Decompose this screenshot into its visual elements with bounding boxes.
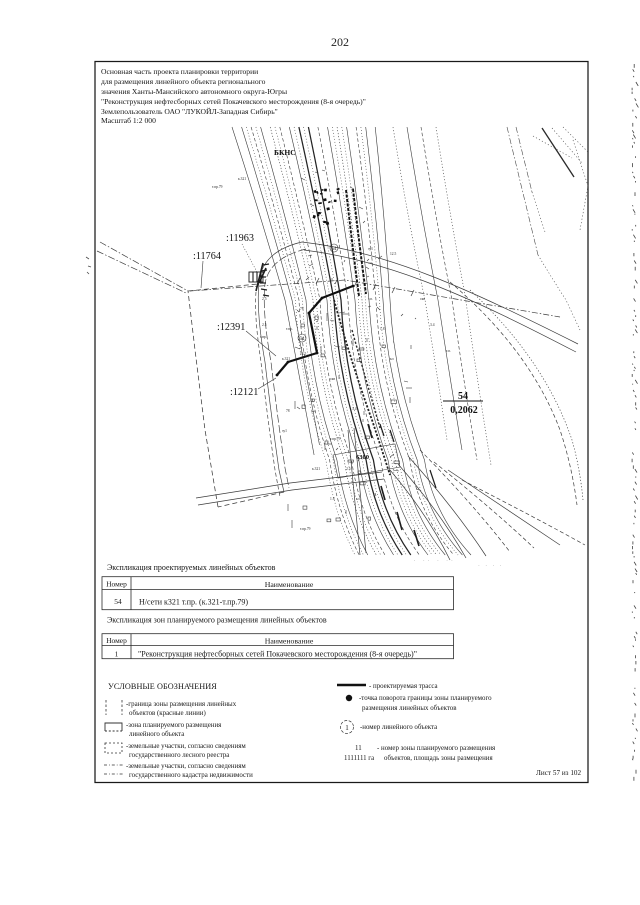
svg-text::12391: :12391	[217, 322, 245, 333]
svg-text:объектов (красные линии): объектов (красные линии)	[129, 710, 206, 717]
svg-text:т.пр.79: т.пр.79	[212, 185, 223, 189]
svg-text:государственного лесного реест: государственного лесного реестра	[129, 752, 229, 759]
svg-text:54: 54	[300, 337, 306, 342]
svg-text:-граница зоны размещения линей: -граница зоны размещения линейных	[126, 701, 237, 708]
svg-text:Лист 57 из 102: Лист 57 из 102	[536, 769, 582, 777]
svg-text:54: 54	[114, 597, 122, 606]
svg-text:т.пр.79: т.пр.79	[330, 437, 341, 441]
svg-text:Экспликация зон планируемого р: Экспликация зон планируемого размещения …	[107, 616, 327, 625]
svg-text:к.321: к.321	[312, 467, 320, 471]
svg-text:"Реконструкция нефтесборных се: "Реконструкция нефтесборных сетей Покаче…	[101, 97, 366, 106]
svg-text:скв: скв	[330, 377, 335, 381]
svg-text:Основная часть проекта планиро: Основная часть проекта планировки террит…	[101, 67, 258, 76]
svg-text:54: 54	[458, 391, 468, 402]
svg-text:2.5: 2.5	[262, 323, 267, 327]
svg-text:Экспликация проектируемых лине: Экспликация проектируемых линейных объек…	[107, 563, 276, 572]
svg-text:Наименование: Наименование	[265, 637, 314, 646]
svg-text:-земельные участки, согласно с: -земельные участки, согласно сведениям	[126, 743, 246, 750]
svg-text:значения Ханты-Мансийского авт: значения Ханты-Мансийского автономного о…	[101, 87, 287, 96]
svg-text:-земельные участки, согласно с: -земельные участки, согласно сведениям	[126, 763, 246, 770]
svg-text:УСЛОВНЫЕ ОБОЗНАЧЕНИЯ: УСЛОВНЫЕ ОБОЗНАЧЕНИЯ	[108, 682, 217, 691]
svg-text:т.вр.: т.вр.	[260, 335, 267, 339]
svg-text:3.4: 3.4	[430, 323, 435, 327]
svg-text:скв: скв	[420, 297, 425, 301]
svg-text:1.8: 1.8	[380, 327, 385, 331]
svg-text:Наименование: Наименование	[265, 580, 314, 589]
svg-text:6300: 6300	[356, 454, 369, 461]
svg-text::11963: :11963	[226, 233, 254, 244]
svg-text::11764: :11764	[193, 251, 221, 262]
svg-text:202: 202	[331, 35, 349, 49]
svg-text:1: 1	[345, 724, 349, 732]
svg-text:т.п.: т.п.	[368, 297, 373, 301]
svg-text:-номер линейного объекта: -номер линейного объекта	[360, 724, 437, 731]
svg-text::12121: :12121	[230, 387, 258, 398]
svg-text:зу1: зу1	[368, 247, 373, 251]
svg-text:"Реконструкция нефтесборных се: "Реконструкция нефтесборных сетей Покаче…	[138, 650, 417, 659]
svg-text:78: 78	[300, 307, 304, 311]
svg-text:12.5: 12.5	[300, 352, 306, 356]
svg-text:Н/сети к321 т.пр. (к.321-т.пр.: Н/сети к321 т.пр. (к.321-т.пр.79)	[139, 598, 248, 607]
svg-text:11: 11	[355, 745, 362, 752]
svg-text:3.4: 3.4	[352, 407, 357, 411]
svg-text:1.8: 1.8	[330, 497, 335, 501]
svg-text:54: 54	[332, 247, 338, 252]
svg-text:0,2062: 0,2062	[450, 405, 478, 416]
svg-text:· ·· · ··: · ·· · ··	[414, 558, 456, 564]
svg-text:-зона планируемого размещения: -зона планируемого размещения	[126, 722, 222, 729]
svg-text:зу1: зу1	[282, 429, 287, 433]
svg-text:Масштаб 1:2 000: Масштаб 1:2 000	[101, 116, 156, 125]
svg-text:12.5: 12.5	[390, 252, 396, 256]
svg-text:-точка поворота границы зоны п: -точка поворота границы зоны планируемог…	[359, 695, 492, 702]
svg-text:объектов, площадь зоны размеще: объектов, площадь зоны размещения	[384, 755, 493, 762]
svg-text:Номер: Номер	[106, 636, 127, 645]
svg-text:1111111 га: 1111111 га	[344, 755, 374, 762]
svg-text:размещения линейных объектов: размещения линейных объектов	[362, 705, 457, 712]
svg-text:· · · ·: · · · ·	[478, 563, 503, 569]
svg-text:к.321: к.321	[238, 177, 246, 181]
svg-text:государственного кадастра недв: государственного кадастра недвижимости	[129, 772, 253, 779]
svg-text:1: 1	[115, 650, 119, 659]
svg-text:для размещения линейного объек: для размещения линейного объекта региона…	[101, 77, 266, 86]
svg-text:кл: кл	[390, 357, 394, 361]
svg-text:БКНС: БКНС	[274, 148, 296, 157]
svg-text:т.пр.79: т.пр.79	[300, 527, 311, 531]
svg-text:т.п.: т.п.	[446, 349, 451, 353]
svg-text:кл: кл	[356, 497, 360, 501]
svg-text:к.321: к.321	[282, 357, 290, 361]
svg-text:2.5: 2.5	[346, 467, 351, 471]
svg-text:- номер зоны планируемого разм: - номер зоны планируемого размещения	[377, 745, 496, 752]
svg-text:2.5: 2.5	[262, 297, 267, 301]
svg-text:т.вр.: т.вр.	[286, 327, 293, 331]
svg-text:78: 78	[286, 409, 290, 413]
svg-text:- проектируемая трасса: - проектируемая трасса	[369, 683, 438, 690]
svg-text:Номер: Номер	[106, 580, 127, 589]
svg-text:Землепользователь ОАО "ЛУКОЙЛ-: Землепользователь ОАО "ЛУКОЙЛ-Западная С…	[101, 107, 278, 116]
svg-text:линейного объекта: линейного объекта	[129, 731, 184, 738]
